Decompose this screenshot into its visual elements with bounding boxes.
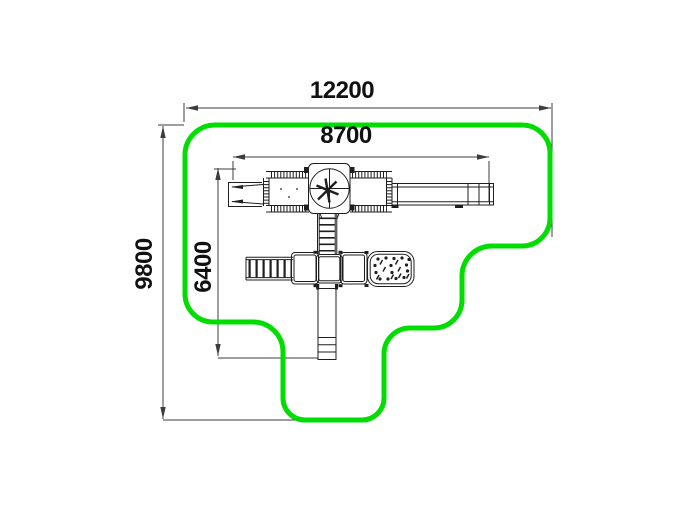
bridge-walkway-left — [264, 172, 310, 213]
climbing-panel — [368, 252, 415, 287]
arrow-up-icon — [215, 168, 220, 180]
arrow-right-icon — [477, 154, 489, 159]
arrow-down-icon — [160, 407, 165, 419]
dimension-label-inner-width: 8700 — [306, 126, 386, 146]
dimension-label-overall-width: 12200 — [292, 81, 392, 101]
dimension-label-inner-depth: 6400 — [191, 222, 217, 312]
arrow-down-icon — [215, 344, 220, 356]
plan-canvas: 12200 8700 9800 6400 — [0, 0, 700, 519]
platform-left — [292, 253, 319, 285]
double-slide — [229, 183, 264, 207]
arrow-right-icon — [539, 105, 551, 110]
platform-center — [317, 255, 343, 284]
platform-right — [341, 253, 368, 285]
bridge-walkway-right — [350, 172, 392, 213]
arrow-left-icon — [186, 105, 198, 110]
equipment-drawing — [229, 164, 494, 361]
arrow-left-icon — [233, 154, 245, 159]
straight-slide — [316, 284, 338, 360]
carousel-tower — [304, 164, 355, 219]
climbing-holds — [373, 256, 410, 280]
balance-beam — [392, 184, 494, 209]
monkey-bars — [246, 257, 293, 280]
arrow-up-icon — [160, 126, 165, 138]
dimension-label-overall-depth: 9800 — [132, 219, 158, 309]
ladder — [318, 214, 337, 255]
